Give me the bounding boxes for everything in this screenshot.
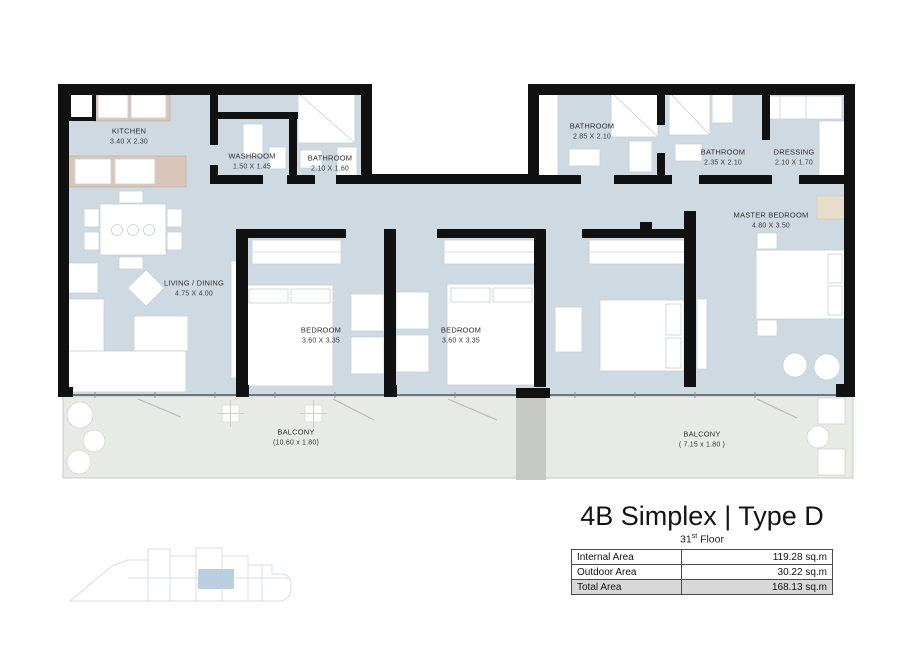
- room-name: BALCONY: [277, 427, 314, 436]
- area-label: Total Area: [572, 580, 682, 595]
- room-name: BEDROOM: [441, 325, 481, 334]
- room-dims: 4.75 X 4.00: [164, 289, 224, 299]
- floor-number: 31: [680, 534, 692, 546]
- floor-word: Floor: [700, 534, 724, 546]
- area-label: Internal Area: [572, 550, 682, 565]
- room-dims: 2.35 X 2.10: [701, 158, 745, 168]
- room-label-bathroom-3: BATHROOM 2.35 X 2.10: [701, 147, 745, 168]
- plan-title: 4B Simplex | Type D: [580, 501, 824, 532]
- floor-layer: [63, 55, 853, 480]
- area-label: Outdoor Area: [572, 565, 682, 580]
- room-name: MASTER BEDROOM: [734, 210, 809, 219]
- room-label-balcony-1: BALCONY (10.60 x 1.80): [273, 427, 319, 448]
- room-label-bathroom-1: BATHROOM 2.10 X 1.60: [308, 153, 352, 174]
- room-dims: 2.10 X 1.60: [308, 164, 352, 174]
- area-value: 168.13 sq.m: [681, 580, 832, 595]
- room-dims: 3.60 X 3.35: [301, 336, 341, 346]
- floor-label: 31st Floor: [680, 533, 724, 546]
- room-label-living-dining: LIVING / DINING 4.75 X 4.00: [164, 278, 224, 299]
- area-value: 30.22 sq.m: [681, 565, 832, 580]
- area-row-total: Total Area 168.13 sq.m: [572, 580, 833, 595]
- area-value: 119.28 sq.m: [681, 550, 832, 565]
- room-label-balcony-2: BALCONY ( 7.15 x 1.80 ): [679, 429, 725, 450]
- floor-suffix: st: [692, 533, 697, 540]
- room-name: WASHROOM: [228, 151, 275, 160]
- room-label-bathroom-2: BATHROOM 2.85 X 2.10: [570, 121, 614, 142]
- key-plan-highlight: [198, 569, 234, 589]
- area-row-internal: Internal Area 119.28 sq.m: [572, 550, 833, 565]
- floor-plan-page: KITCHEN 3.40 X 2.30 WASHROOM 1.50 X 1.45…: [0, 0, 915, 655]
- room-name: BATHROOM: [308, 153, 352, 162]
- room-dims: 2.85 X 2.10: [570, 132, 614, 142]
- room-label-bedroom-2: BEDROOM 3.60 X 3.35: [441, 325, 481, 346]
- room-name: BALCONY: [683, 429, 720, 438]
- room-name: BATHROOM: [701, 147, 745, 156]
- room-dims: 2.10 X 1.70: [774, 158, 815, 168]
- area-row-outdoor: Outdoor Area 30.22 sq.m: [572, 565, 833, 580]
- room-name: BEDROOM: [301, 325, 341, 334]
- room-dims: (10.60 x 1.80): [273, 438, 319, 448]
- room-dims: 4.80 X 3.50: [734, 221, 809, 231]
- room-label-master-bedroom: MASTER BEDROOM 4.80 X 3.50: [734, 210, 809, 231]
- room-name: KITCHEN: [112, 126, 146, 135]
- room-label-bedroom-1: BEDROOM 3.60 X 3.35: [301, 325, 341, 346]
- room-dims: 3.60 X 3.35: [441, 336, 481, 346]
- room-name: BATHROOM: [570, 121, 614, 130]
- room-dims: ( 7.15 x 1.80 ): [679, 440, 725, 450]
- room-name: DRESSING: [774, 147, 815, 156]
- room-label-washroom: WASHROOM 1.50 X 1.45: [228, 151, 275, 172]
- area-table: Internal Area 119.28 sq.m Outdoor Area 3…: [571, 549, 833, 595]
- room-name: LIVING / DINING: [164, 278, 224, 287]
- room-label-kitchen: KITCHEN 3.40 X 2.30: [110, 126, 148, 147]
- room-label-dressing: DRESSING 2.10 X 1.70: [774, 147, 815, 168]
- room-dims: 1.50 X 1.45: [228, 162, 275, 172]
- room-dims: 3.40 X 2.30: [110, 137, 148, 147]
- key-plan: [70, 548, 291, 601]
